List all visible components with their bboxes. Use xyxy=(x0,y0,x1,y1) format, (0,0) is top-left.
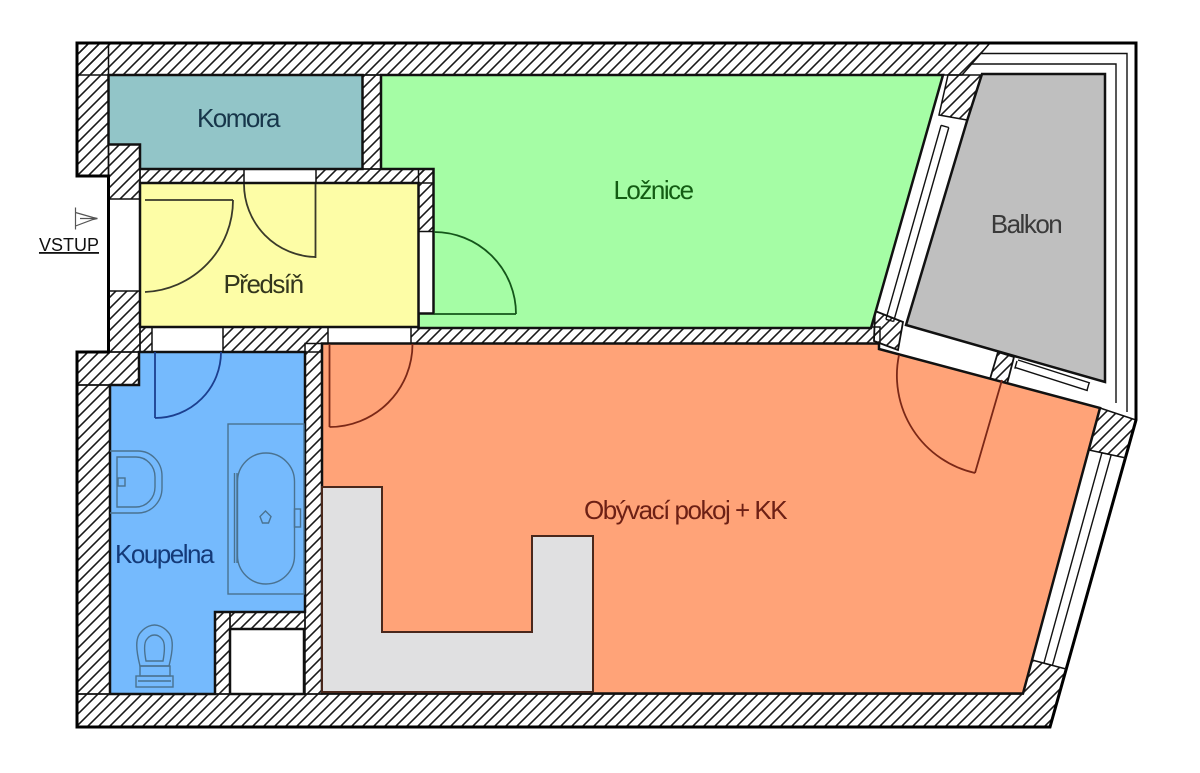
svg-text:Balkon: Balkon xyxy=(991,209,1062,239)
svg-text:Komora: Komora xyxy=(197,103,281,133)
svg-text:Koupelna: Koupelna xyxy=(115,539,215,569)
svg-text:Ložnice: Ložnice xyxy=(613,175,693,205)
svg-text:VSTUP: VSTUP xyxy=(39,235,99,255)
svg-text:Předsíň: Předsíň xyxy=(223,269,302,299)
svg-text:Obývací pokoj + KK: Obývací pokoj + KK xyxy=(584,495,788,525)
